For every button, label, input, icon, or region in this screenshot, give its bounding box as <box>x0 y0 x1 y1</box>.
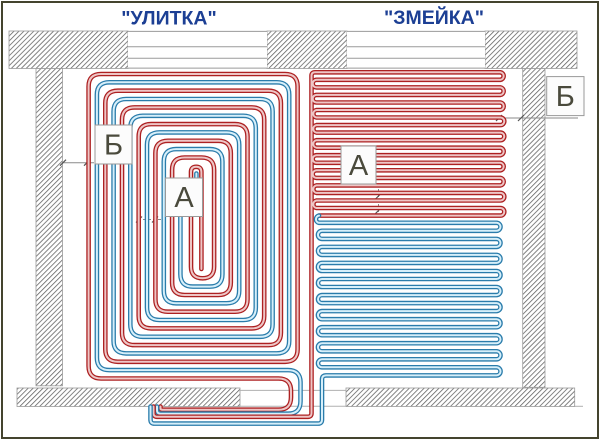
svg-text:Б: Б <box>104 130 123 162</box>
svg-text:А: А <box>174 182 194 214</box>
svg-text:Б: Б <box>556 81 575 113</box>
svg-text:"ЗМЕЙКА": "ЗМЕЙКА" <box>384 5 484 29</box>
svg-text:"УЛИТКА": "УЛИТКА" <box>121 8 216 30</box>
svg-text:А: А <box>349 150 369 182</box>
